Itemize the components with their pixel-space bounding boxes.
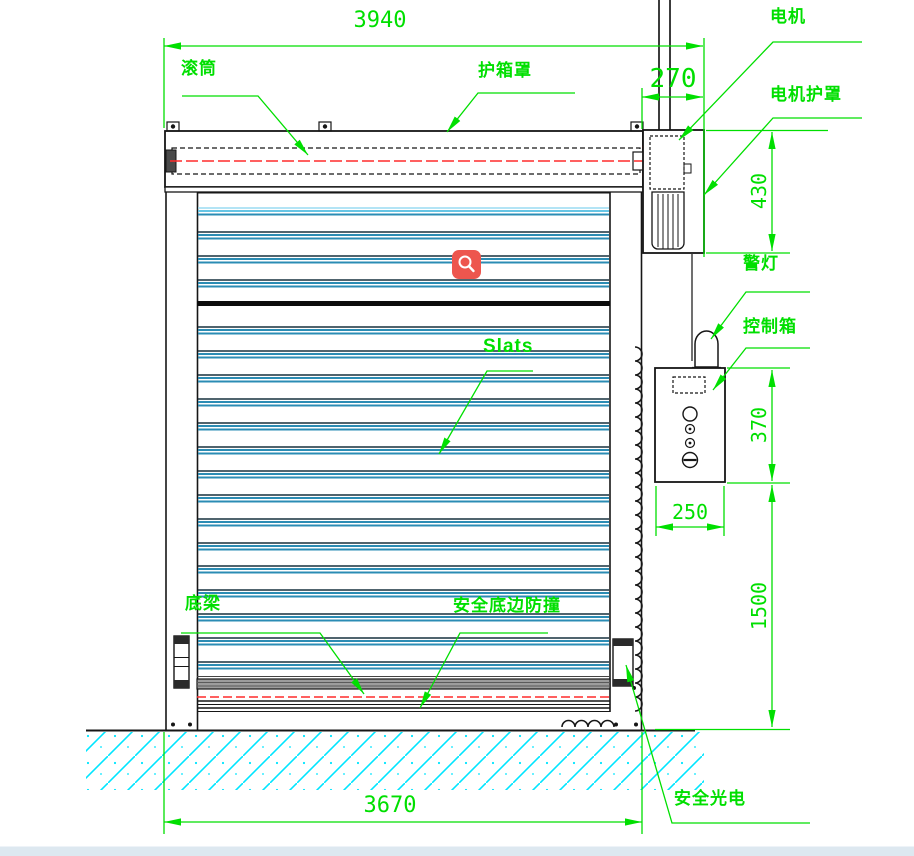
dim-text-1500: 1500 [749,582,769,630]
leader-motor-cover [704,118,862,195]
leader-slats [439,371,533,454]
photocell-sensor-left [174,636,189,688]
label-warning-light: 警灯 [743,255,779,274]
leader-control-box [713,348,810,390]
leader-hood [447,93,575,132]
dim-text-370: 370 [749,407,769,443]
label-hood: 护箱罩 [478,62,532,81]
hood-box [165,122,692,192]
label-safety-edge: 安全底边防撞 [453,597,561,616]
label-slats: Slats [483,337,533,358]
dim-text-270: 270 [650,66,697,92]
motor-enclosure [643,130,704,253]
photocell-sensor-right [613,639,636,690]
dim-text-3670: 3670 [364,795,417,817]
bottom-beam [197,677,610,712]
control-box [655,368,725,482]
label-roller: 滚筒 [181,60,217,79]
dim-text-430: 430 [749,173,769,209]
search-icon [452,250,481,279]
magnifier-marker[interactable] [452,250,481,279]
label-motor-cover: 电机护罩 [770,86,842,105]
label-control-box: 控制箱 [743,318,797,337]
label-photocell: 安全光电 [674,790,746,809]
hood-mounting-tabs [167,122,643,131]
label-motor: 电机 [770,8,806,27]
guide-columns [166,192,642,730]
warning-light [692,253,721,368]
ground [86,731,704,791]
spiral-cable [562,347,642,727]
label-bottom-beam: 底梁 [185,595,221,614]
drawing-canvas: 滚筒 护箱罩 电机 电机护罩 警灯 控制箱 Slats 底梁 安全底边防撞 安全… [0,0,914,856]
technical-drawing [0,0,914,856]
dim-text-3940: 3940 [354,10,407,32]
window-edge-strip [0,846,914,856]
dim-text-250: 250 [672,502,708,522]
